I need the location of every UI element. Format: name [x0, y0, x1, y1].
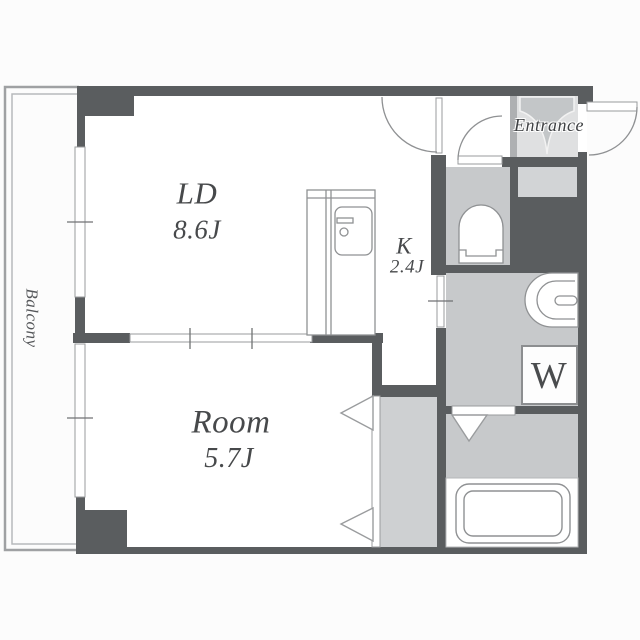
kitchen-door-leaf [436, 98, 442, 153]
toilet-icon [459, 205, 503, 263]
room-area-kitchen: 2.4J [390, 258, 424, 277]
balcony-outline [5, 87, 79, 550]
room-label-ld: LD [177, 178, 218, 209]
vanity-sink-icon [525, 273, 578, 327]
room-area-ld: 8.6J [173, 217, 221, 244]
kitchen-counter-icon [307, 190, 375, 335]
partition-ld-room [130, 334, 312, 342]
floor-plan: LD 8.6J Room 5.7J K 2.4J Entrance Balcon… [0, 0, 640, 640]
room-area-bedroom: 5.7J [204, 445, 253, 473]
room-label-bedroom: Room [192, 407, 271, 440]
room-label-kitchen: K [396, 235, 412, 258]
floor-plan-drawing [0, 0, 640, 640]
shoe-box [518, 167, 577, 197]
closet-floor [380, 397, 437, 547]
balcony-label: Balcony [24, 288, 41, 347]
bathtub-icon [456, 484, 570, 543]
window-room [75, 344, 85, 497]
entrance-door-arc [589, 107, 637, 155]
washer-label: W [531, 357, 567, 395]
faucet-icon [337, 218, 353, 223]
entrance-label: Entrance [514, 116, 584, 134]
entrance-door-leaf [587, 102, 637, 111]
vanity-tap-icon [555, 296, 577, 305]
bathroom-doorway [452, 406, 515, 415]
toilet-door-leaf [458, 156, 502, 164]
